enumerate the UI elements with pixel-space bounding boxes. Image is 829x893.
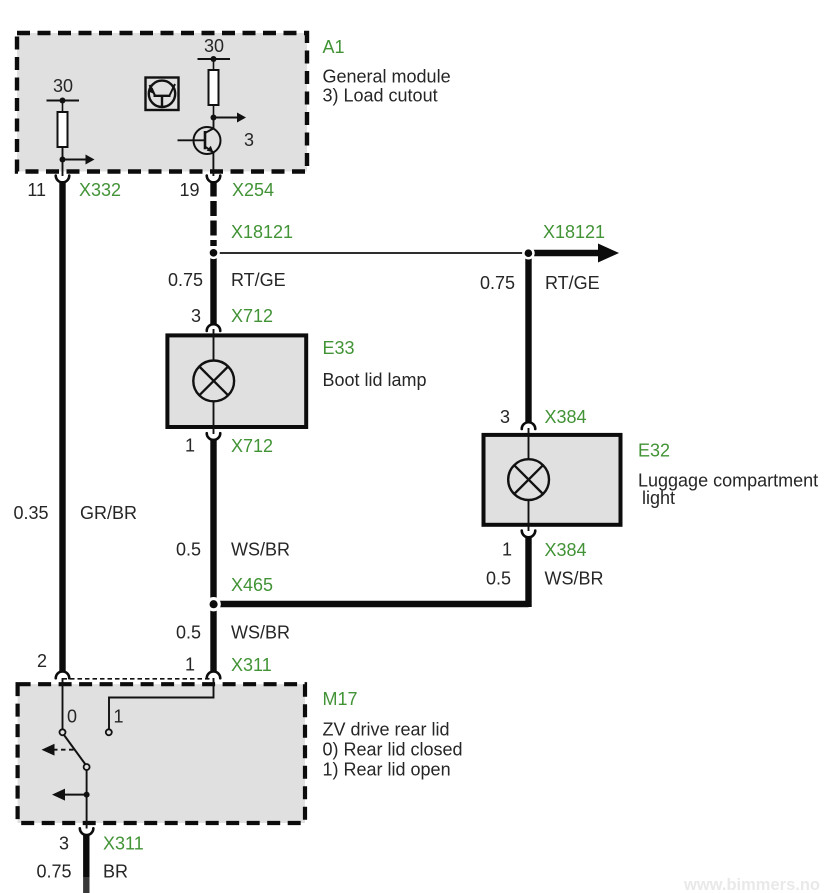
svg-text:X384: X384 [545,540,587,560]
svg-text:E33: E33 [323,338,355,358]
svg-text:0) Rear lid closed: 0) Rear lid closed [323,740,463,760]
svg-text:19: 19 [179,180,199,200]
svg-text:3: 3 [59,834,69,854]
svg-text:2: 2 [37,651,47,671]
svg-text:3: 3 [500,407,510,427]
svg-text:X311: X311 [231,655,272,675]
svg-text:X18121: X18121 [231,222,293,242]
svg-text:1: 1 [185,655,195,675]
svg-text:RT/GE: RT/GE [231,270,286,290]
svg-text:X712: X712 [231,436,273,456]
svg-text:0.5: 0.5 [176,540,201,560]
svg-text:11: 11 [27,180,46,200]
svg-text:30: 30 [53,76,73,96]
svg-text:0.75: 0.75 [480,273,515,293]
svg-text:0.75: 0.75 [36,862,71,882]
svg-text:Boot lid lamp: Boot lid lamp [323,370,427,390]
svg-text:0.5: 0.5 [486,569,511,589]
svg-text:General module: General module [323,67,451,87]
svg-text:0.5: 0.5 [176,623,201,643]
svg-text:BR: BR [103,862,128,882]
svg-text:light: light [642,488,675,508]
svg-text:X332: X332 [79,180,121,200]
svg-text:X18121: X18121 [543,222,605,242]
svg-text:3: 3 [191,306,201,326]
svg-text:1: 1 [114,707,124,727]
svg-text:1) Rear lid open: 1) Rear lid open [323,760,451,780]
svg-text:RT/GE: RT/GE [545,273,600,293]
svg-text:X384: X384 [545,407,587,427]
svg-text:E32: E32 [638,441,670,461]
svg-text:X311: X311 [103,834,144,854]
svg-text:1: 1 [502,540,512,560]
svg-text:WS/BR: WS/BR [545,569,604,589]
svg-text:ZV drive rear lid: ZV drive rear lid [323,720,450,740]
svg-text:3) Load cutout: 3) Load cutout [323,86,438,106]
svg-text:0.75: 0.75 [168,270,203,290]
svg-text:GR/BR: GR/BR [80,503,137,523]
svg-text:0.35: 0.35 [13,503,48,523]
svg-text:X465: X465 [231,575,273,595]
svg-text:X712: X712 [231,306,273,326]
svg-text:www.bimmers.no: www.bimmers.no [683,876,820,893]
svg-text:1: 1 [185,436,195,456]
svg-text:WS/BR: WS/BR [231,540,290,560]
svg-text:M17: M17 [323,689,358,709]
svg-text:WS/BR: WS/BR [231,623,290,643]
svg-text:X254: X254 [232,180,274,200]
svg-text:0: 0 [67,707,77,727]
svg-text:30: 30 [204,36,224,56]
svg-text:3: 3 [244,130,254,150]
svg-text:A1: A1 [323,37,345,57]
